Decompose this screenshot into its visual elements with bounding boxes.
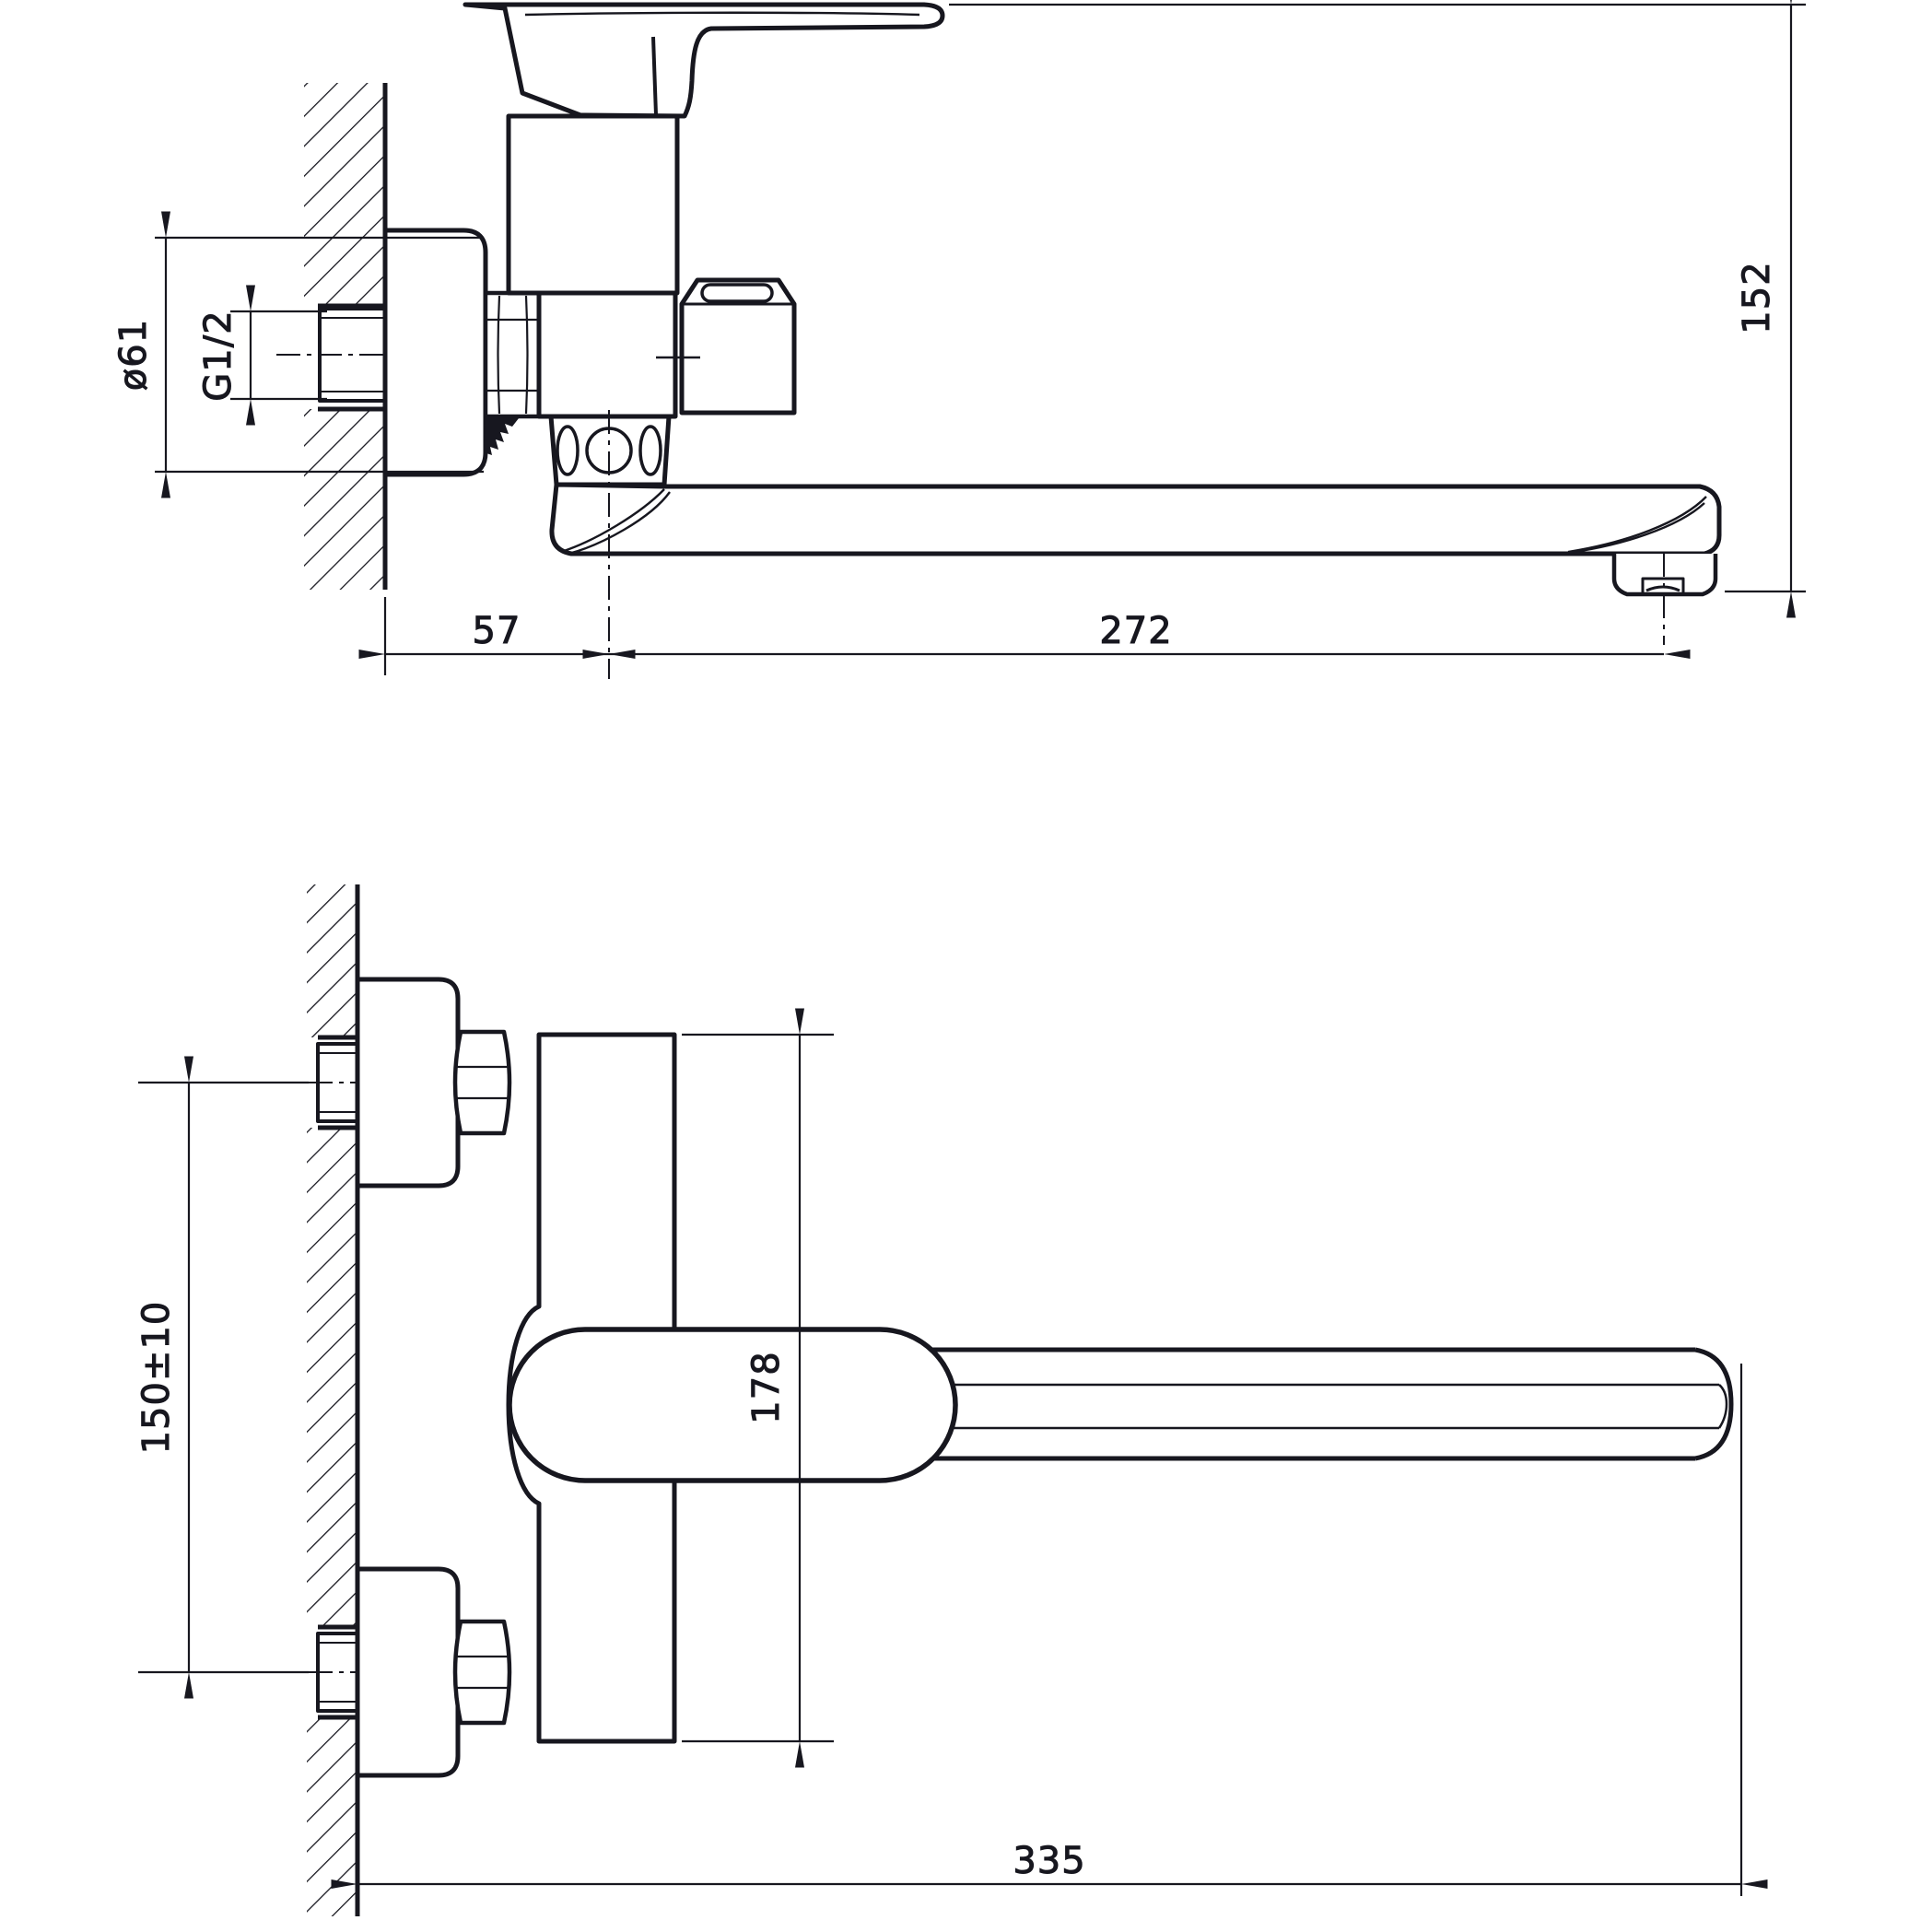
faucet-body-side-view xyxy=(509,116,677,293)
spout-side-view xyxy=(552,485,1719,554)
dim-label-150: 150±10 xyxy=(135,1301,178,1455)
spout-plan xyxy=(931,1350,1731,1458)
dim-label-178: 178 xyxy=(745,1351,788,1423)
dim-label-272: 272 xyxy=(1099,610,1172,652)
wall-hatch-plan-view xyxy=(307,884,357,1916)
dim-label-152: 152 xyxy=(1736,261,1778,334)
dim-label-335: 335 xyxy=(1013,1840,1085,1882)
thread-break-mark xyxy=(484,416,519,455)
aerator xyxy=(1614,553,1715,645)
hex-nut-side-view xyxy=(486,293,539,416)
dim-label-dia61: ø61 xyxy=(112,319,155,391)
lever-handle-side-view xyxy=(465,5,943,116)
faucet-dimension-drawing: ø61 G1/2 57 272 152 xyxy=(0,0,1932,1932)
escutcheon-side-view xyxy=(385,230,486,474)
dim-label-57: 57 xyxy=(473,610,521,652)
lower-hex-nut-plan xyxy=(455,1622,509,1723)
side-view xyxy=(276,5,1719,679)
upper-hex-nut-plan xyxy=(455,1032,509,1133)
lower-escutcheon-plan xyxy=(357,1569,458,1775)
drawing-sheet: ø61 G1/2 57 272 152 xyxy=(0,0,1932,1932)
lower-body-block xyxy=(539,293,675,416)
dim-label-g12: G1/2 xyxy=(197,310,240,401)
plan-view xyxy=(138,884,1731,1916)
lever-handle-plan xyxy=(509,1329,955,1481)
upper-escutcheon-plan xyxy=(357,979,458,1186)
